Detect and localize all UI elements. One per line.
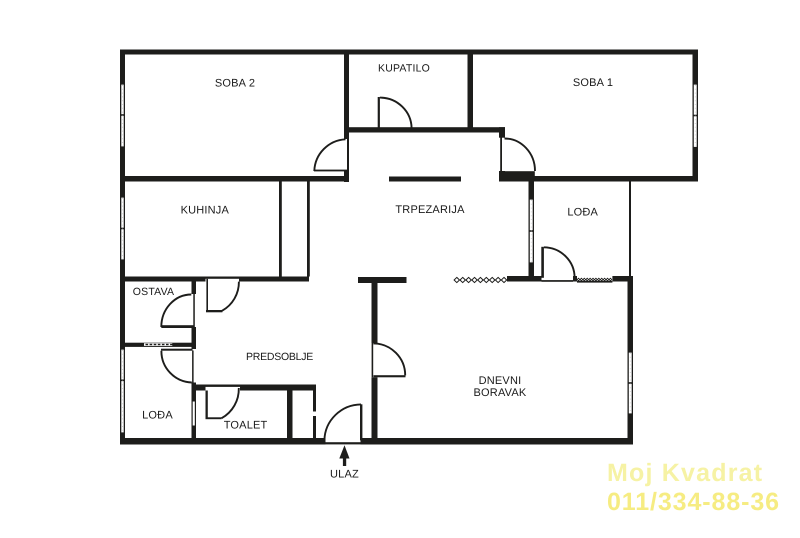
- svg-text:TRPEZARIJA: TRPEZARIJA: [395, 204, 465, 216]
- svg-text:BORAVAK: BORAVAK: [474, 387, 527, 399]
- svg-text:PREDSOBLJE: PREDSOBLJE: [246, 351, 313, 363]
- svg-text:OSTAVA: OSTAVA: [133, 286, 174, 298]
- svg-text:SOBA 1: SOBA 1: [573, 77, 613, 89]
- svg-text:LOĐA: LOĐA: [142, 410, 173, 422]
- svg-text:DNEVNI: DNEVNI: [479, 375, 522, 387]
- svg-text:TOALET: TOALET: [224, 420, 268, 432]
- svg-text:SOBA 2: SOBA 2: [215, 78, 255, 90]
- svg-text:011/334-88-36: 011/334-88-36: [607, 488, 780, 516]
- svg-text:ULAZ: ULAZ: [330, 469, 359, 481]
- svg-text:KUPATILO: KUPATILO: [378, 63, 430, 75]
- svg-text:LOĐA: LOĐA: [567, 207, 598, 219]
- svg-text:Moj Kvadrat: Moj Kvadrat: [607, 459, 763, 487]
- svg-text:KUHINJA: KUHINJA: [181, 205, 230, 217]
